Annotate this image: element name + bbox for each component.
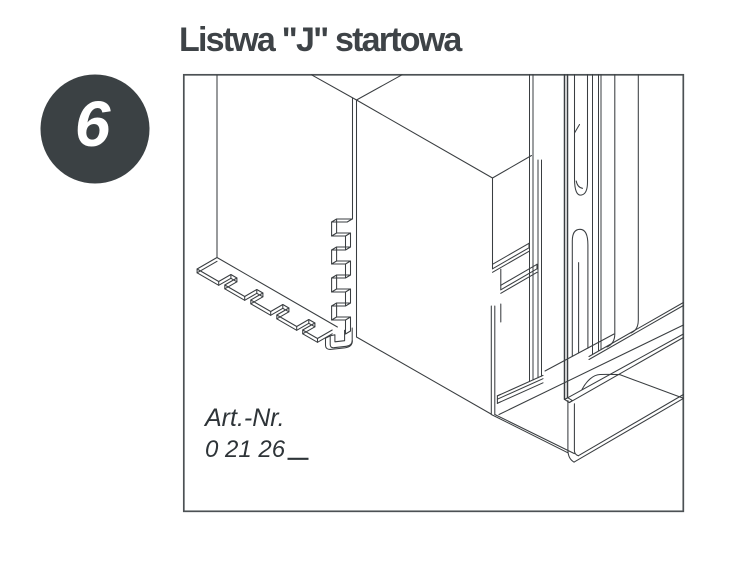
svg-text:0 21 26: 0 21 26 bbox=[205, 436, 286, 463]
svg-text:Art.-Nr.: Art.-Nr. bbox=[203, 404, 285, 432]
svg-text:6: 6 bbox=[75, 88, 111, 160]
svg-text:Listwa "J" startowa: Listwa "J" startowa bbox=[179, 21, 463, 59]
